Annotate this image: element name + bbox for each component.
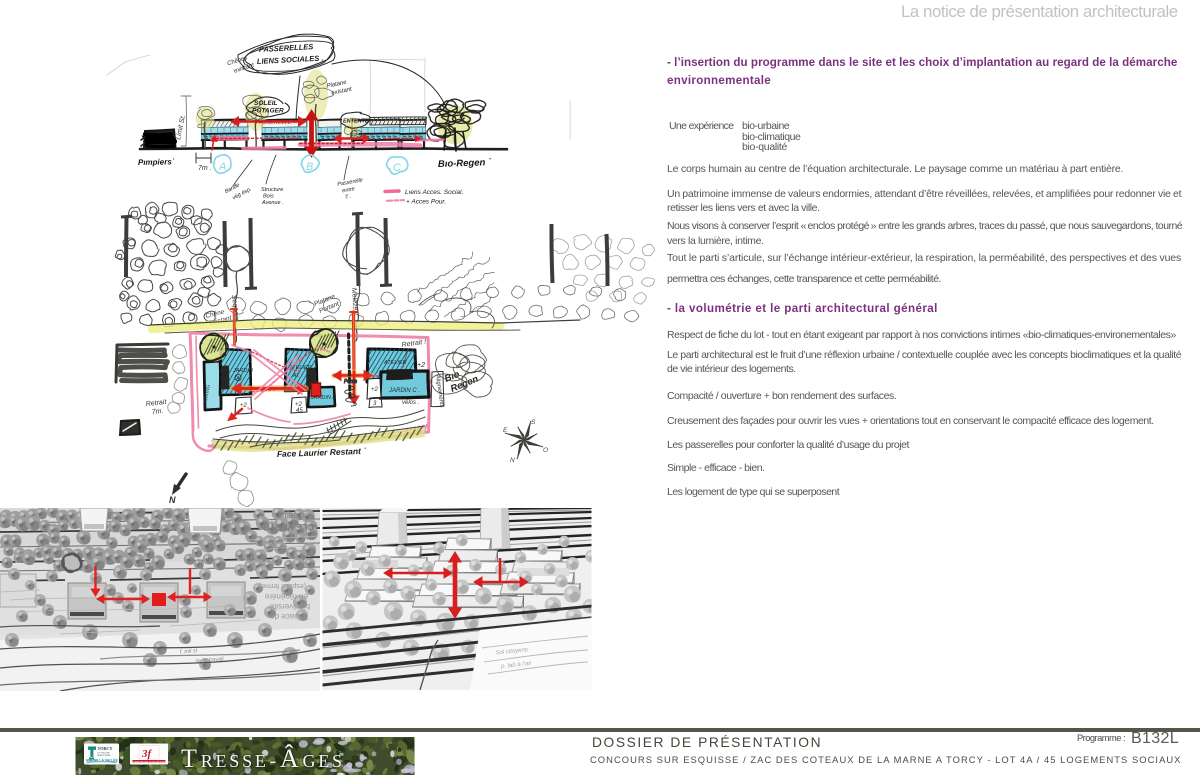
svg-text:T .: T .: [345, 194, 352, 201]
svg-text:biodiversité: biodiversité: [269, 602, 310, 611]
svg-text:Avenue .: Avenue .: [261, 200, 284, 206]
svg-text:3f: 3f: [141, 748, 153, 760]
svg-text:B: B: [306, 161, 313, 173]
svg-text:ATELIER: ATELIER: [383, 360, 407, 366]
svg-text:JARDIN: JARDIN: [232, 368, 253, 374]
svg-text:JARDIN C .: JARDIN C .: [388, 388, 420, 394]
svg-text:30 DE-LA: 30 DE-LA: [277, 511, 308, 518]
svg-text:SOLEIL: SOLEIL: [254, 100, 278, 107]
svg-text:O: O: [543, 447, 548, 454]
svg-text:PASSERELLES: PASSERELLES: [259, 42, 314, 54]
svg-text:vélos .: vélos .: [402, 400, 419, 406]
svg-text:(espace fermé): (espace fermé): [259, 582, 306, 589]
svg-text:A: A: [218, 161, 226, 173]
svg-text:3: 3: [373, 401, 377, 407]
svg-text:S: S: [531, 419, 536, 426]
svg-text:+ Acces Pour.: + Acces Pour.: [406, 199, 446, 206]
svg-text:TORCY: TORCY: [98, 746, 113, 751]
svg-text:A: A: [236, 376, 240, 382]
svg-text:Lıens Acces. Social.: Lıens Acces. Social.: [405, 189, 463, 196]
svg-text:Structure: Structure: [261, 187, 283, 193]
svg-text:Bois: Bois: [263, 194, 274, 200]
svg-text:LIENS SOCIALES .: LIENS SOCIALES .: [257, 54, 324, 66]
svg-text:L’IMMOBILIER D’UTILITÉ SOCIALE: L’IMMOBILIER D’UTILITÉ SOCIALE: [133, 761, 171, 764]
svg-text:entre: entre: [342, 186, 355, 194]
svg-text:Bıo-Regen ˙: Bıo-Regen ˙: [438, 157, 492, 170]
svg-text:E: E: [503, 427, 508, 434]
svg-text:45: 45: [296, 408, 303, 414]
svg-text:Retrait !: Retrait !: [401, 339, 426, 349]
svg-text:N: N: [169, 495, 176, 505]
svg-text:Limit St.: Limit St.: [175, 114, 187, 140]
svg-text:+2: +2: [371, 387, 379, 393]
svg-text:POTAGER: POTAGER: [252, 108, 284, 115]
svg-text:Retrait: Retrait: [145, 399, 167, 408]
svg-text:+2: +2: [417, 362, 425, 369]
svg-text:en régénére: en régénére: [264, 592, 308, 601]
svg-text:MIEUX-VIVRE: MIEUX-VIVRE: [98, 755, 112, 757]
svg-text:C: C: [393, 162, 401, 174]
svg-text:CLE VERTE: CLE VERTE: [263, 522, 314, 532]
svg-text:N: N: [510, 457, 515, 464]
svg-text:Espace de: Espace de: [270, 612, 308, 621]
svg-text:Meleze: Meleze: [350, 288, 359, 311]
svg-text:Pente: Pente: [344, 379, 357, 385]
svg-text:7m .: 7m .: [198, 165, 212, 172]
svg-text:ENTENTE: ENTENTE: [343, 119, 369, 125]
svg-text:Face Laurier Restant ˙: Face Laurier Restant ˙: [277, 446, 367, 459]
svg-text:AT.: AT.: [292, 373, 300, 379]
svg-text:f. mil st: f. mil st: [180, 648, 198, 655]
svg-text:7m.: 7m.: [151, 408, 163, 416]
svg-text:Pımpiers˙: Pımpiers˙: [138, 157, 175, 167]
svg-text:PASSERELLE +: PASSERELLE +: [256, 120, 297, 126]
